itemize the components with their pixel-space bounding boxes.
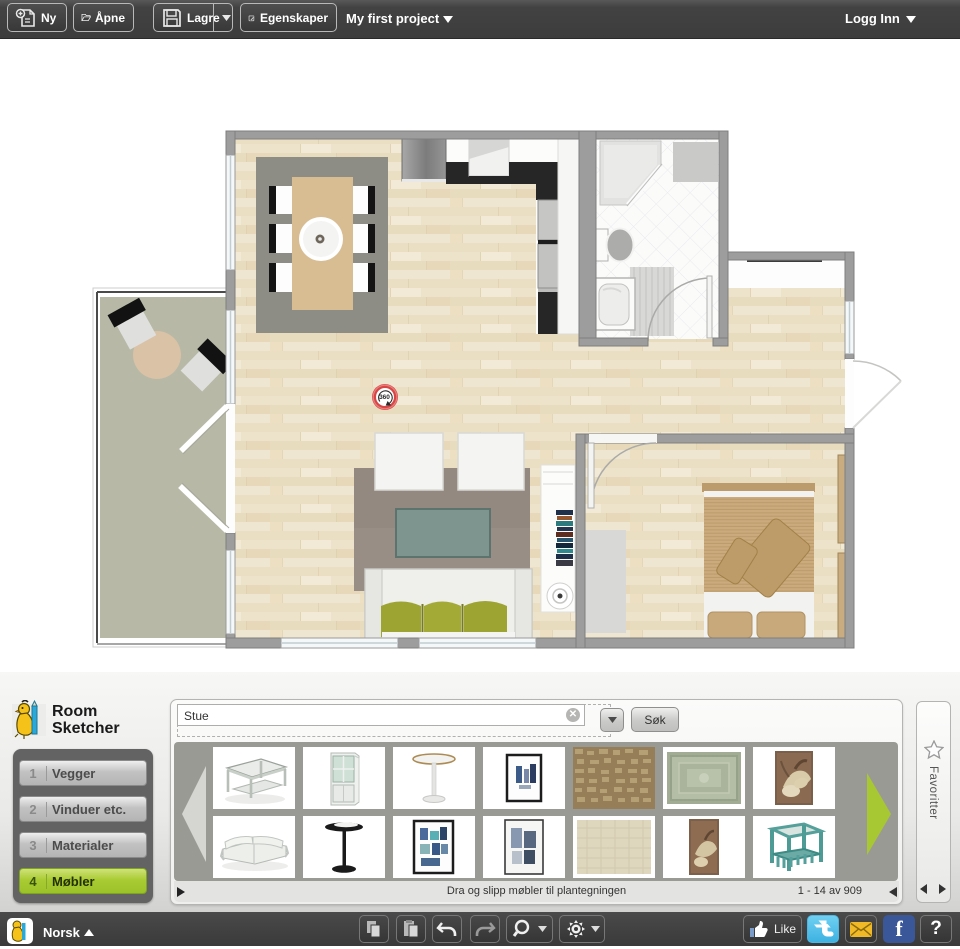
svg-text:Room: Room [52, 703, 97, 720]
svg-text:360: 360 [379, 394, 390, 401]
svg-text:Sketcher: Sketcher [52, 720, 120, 737]
